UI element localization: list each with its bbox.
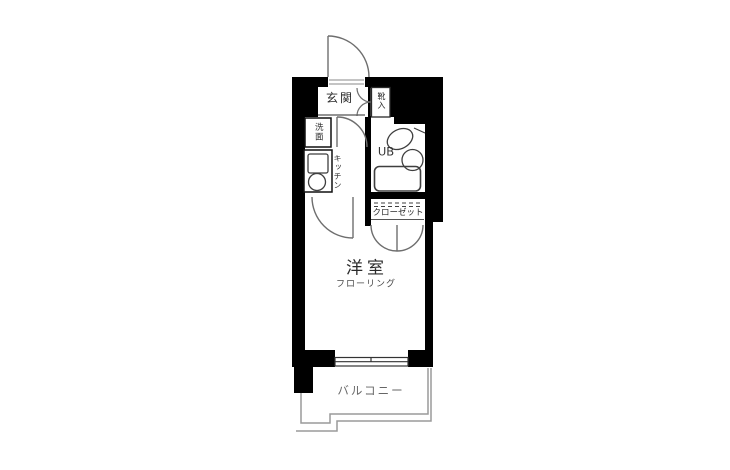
shoebox-doors-icon (357, 88, 371, 116)
entrance-threshold-lines (329, 80, 364, 84)
entrance-door-icon (328, 36, 369, 77)
plan-linework (0, 0, 730, 470)
kitchen-label: キッチン (333, 154, 341, 190)
main-room-label: 洋室 (346, 261, 388, 278)
hall-door-icon (337, 117, 367, 147)
closet-hanger-dashes (374, 203, 422, 207)
shoebox-label: 靴入 (377, 92, 385, 110)
toilet-tank-line (414, 128, 425, 133)
floorplan-canvas: 玄関 靴入 洗面 キッチン UB クローゼット 洋室 フローリング バルコニー (0, 0, 730, 470)
closet-doors-icon (371, 225, 423, 251)
washbasin-label: 洗面 (314, 123, 323, 142)
closet-label: クローゼット (372, 208, 423, 217)
main-room-floor-note: フローリング (336, 281, 396, 290)
balcony-label: バルコニー (337, 385, 404, 397)
balcony-outline (296, 368, 431, 431)
bath-sink-icon (402, 150, 423, 171)
unit-bath-label: UB (378, 146, 394, 158)
window-symbol (335, 358, 408, 367)
room-door-icon (312, 197, 353, 238)
entrance-label: 玄関 (326, 92, 354, 104)
